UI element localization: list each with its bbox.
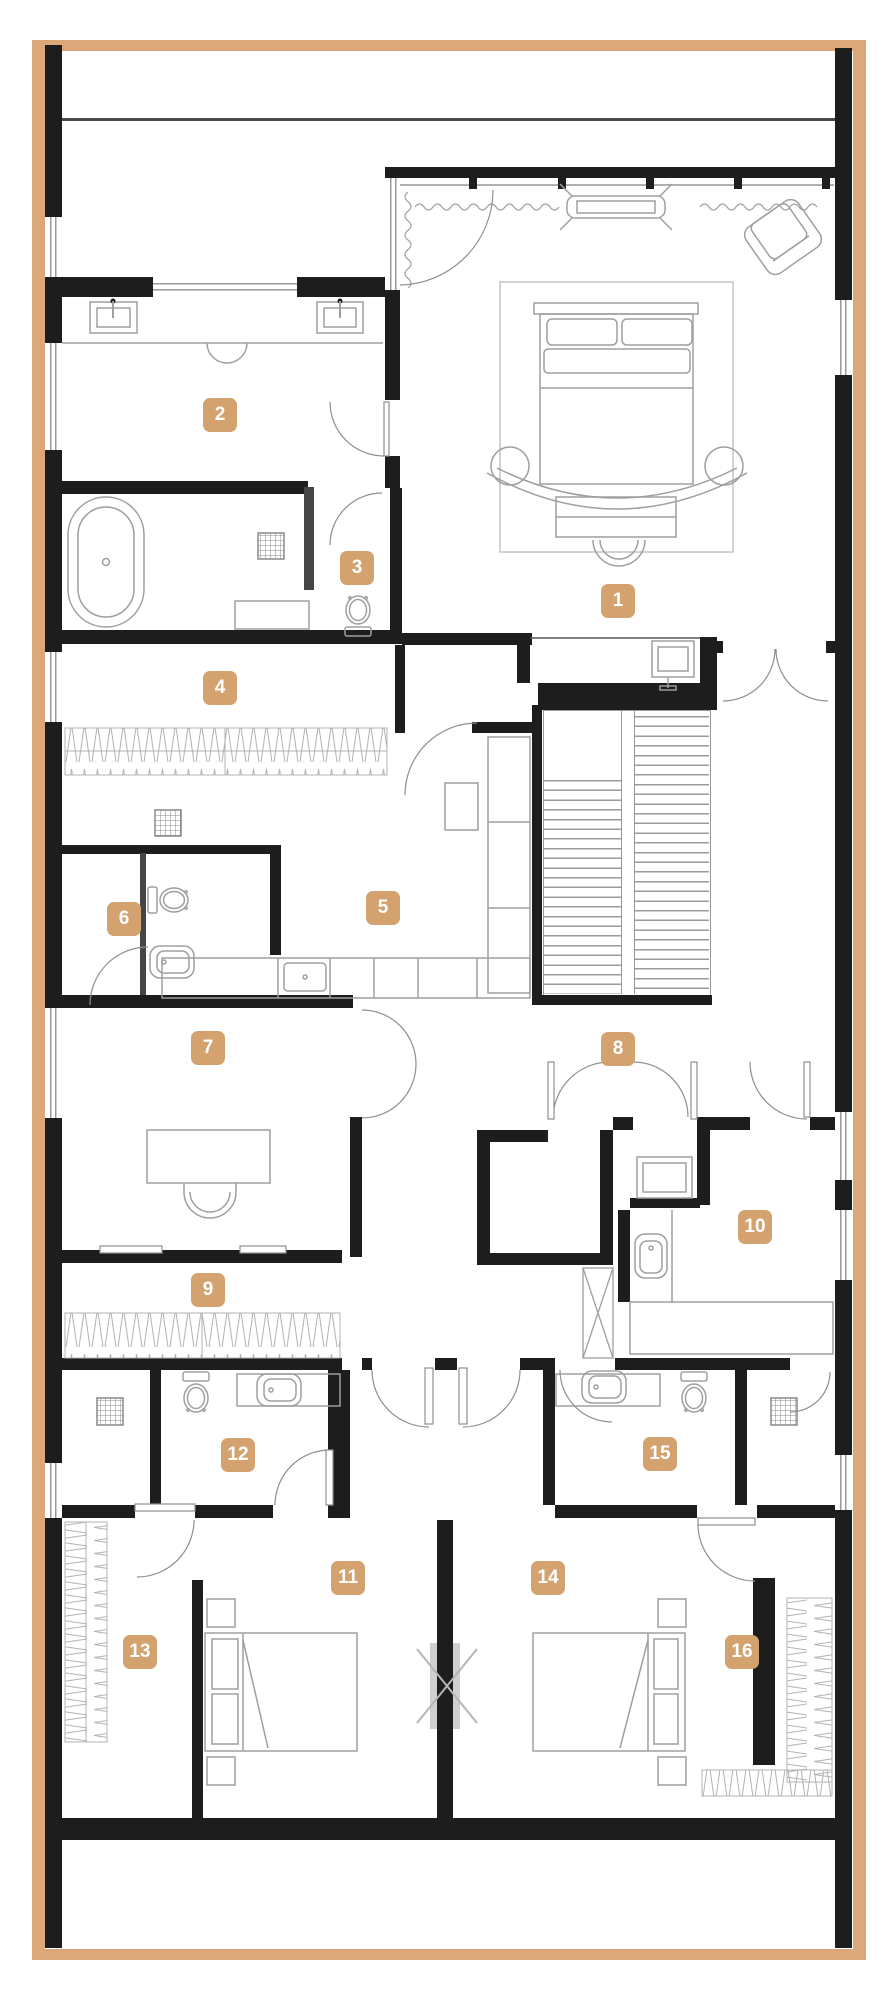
bed-room14 [533,1599,686,1785]
vanity-sinks [62,299,383,364]
room-label-12: 12 [221,1438,255,1472]
bath-counters [237,1157,833,1406]
tv-console [560,184,672,230]
room-label-5: 5 [366,891,400,925]
furniture-layer [0,0,895,2000]
room-label-3: 3 [340,551,374,585]
room-label-10: 10 [738,1210,772,1244]
sink-room10 [635,1234,667,1278]
sink-room12 [257,1374,301,1406]
column-x [417,1649,477,1723]
room-label-9: 9 [191,1273,225,1307]
wardrobe-hatch [65,728,832,1796]
toilet-wc3 [345,596,371,636]
bed-room11 [205,1599,357,1785]
wardrobe-hatch-vertical [65,1522,832,1782]
sink-room15 [582,1371,626,1403]
room-label-4: 4 [203,671,237,705]
kitchen-counters [162,737,530,998]
room-label-16: 16 [725,1635,759,1669]
room-label-7: 7 [191,1031,225,1065]
curtain-lines [405,192,817,288]
toilet-room12 [183,1372,209,1412]
master-bed [487,282,747,566]
bathtub [68,497,309,629]
toilet-room15 [681,1372,707,1412]
floor-plan: 1 2 3 4 5 6 7 8 9 10 11 12 13 14 15 16 [0,0,895,2000]
room-label-1: 1 [601,584,635,618]
room-label-13: 13 [123,1635,157,1669]
sink-room6 [150,946,194,978]
room-label-11: 11 [331,1561,365,1595]
shaft-x [583,1268,613,1358]
dining-table [147,1130,270,1218]
room-label-8: 8 [601,1032,635,1066]
room-label-6: 6 [107,902,141,936]
room-label-15: 15 [643,1437,677,1471]
room-label-2: 2 [203,398,237,432]
room-label-14: 14 [531,1561,565,1595]
laundry-sink [530,638,700,690]
toilet-room6 [148,887,188,913]
